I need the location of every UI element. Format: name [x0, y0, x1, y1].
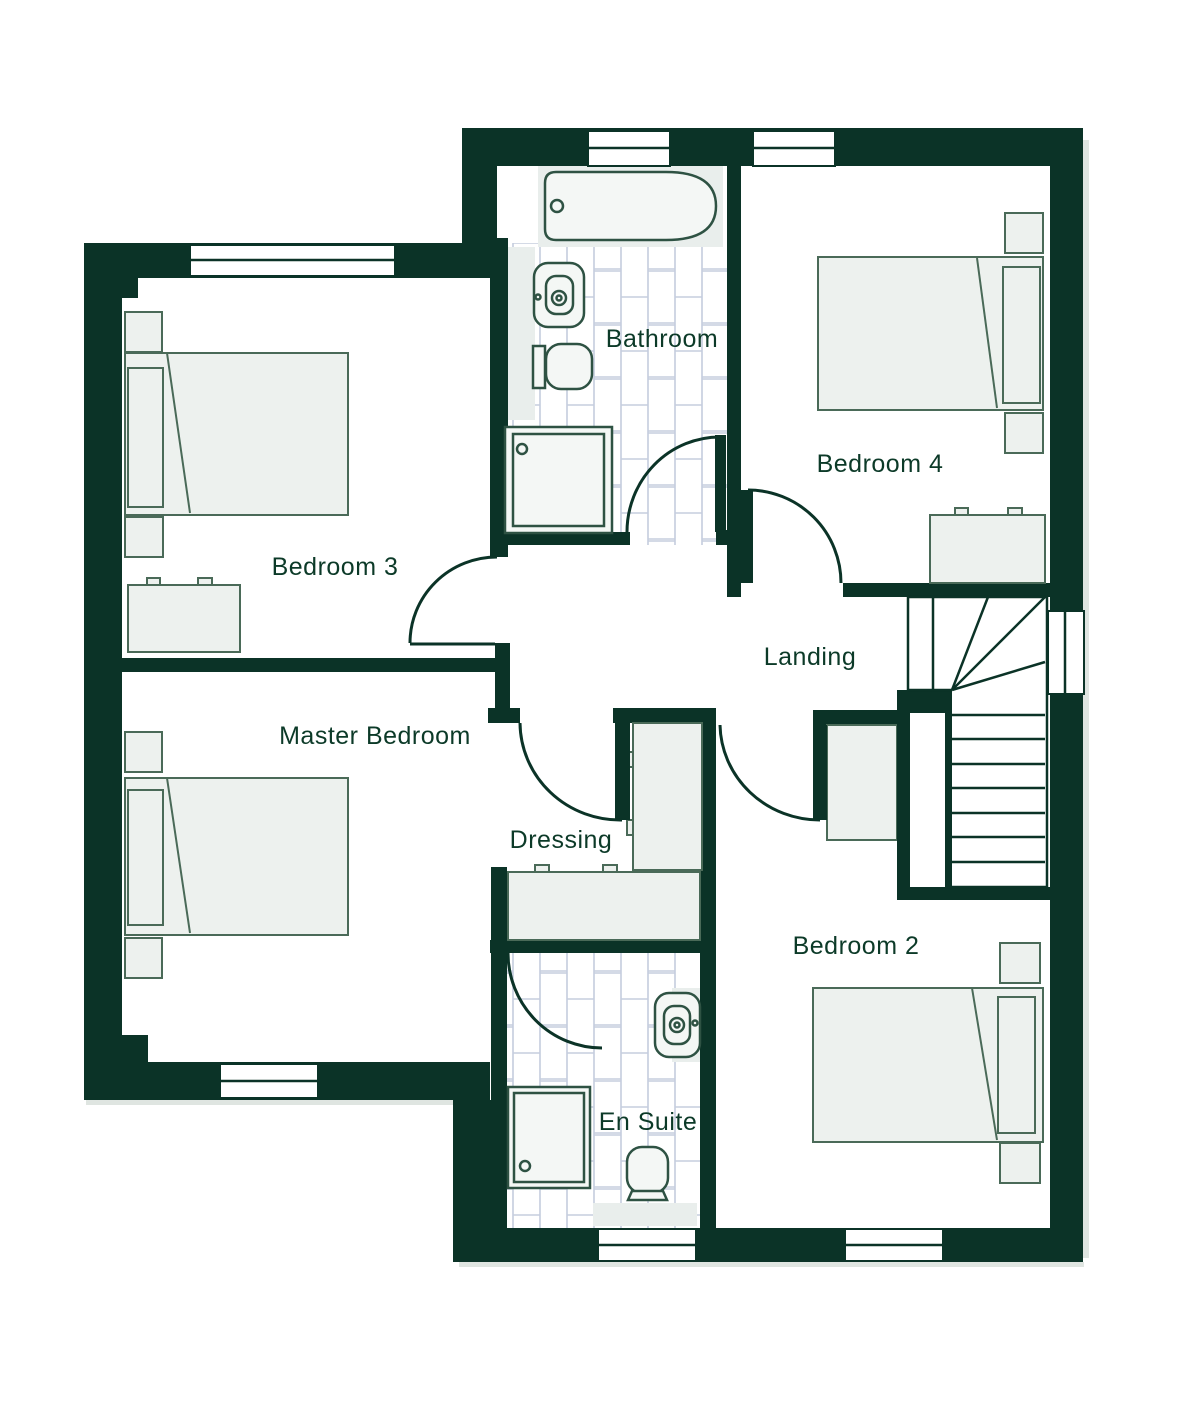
bedside-table	[125, 517, 163, 557]
dresser	[930, 508, 1045, 583]
bedside-table	[125, 938, 162, 978]
floor-plan-canvas: Bathroom Bedroom 4 Bedroom 3 Landing Mas…	[0, 0, 1192, 1418]
bedside-table	[125, 312, 162, 352]
room-label-bathroom: Bathroom	[606, 325, 718, 353]
room-label-master-bedroom: Master Bedroom	[279, 722, 471, 750]
ensuite-shelf	[593, 1203, 697, 1226]
window	[845, 1229, 943, 1261]
room-label-landing: Landing	[764, 643, 856, 671]
double-bed	[125, 353, 348, 515]
window	[753, 131, 835, 166]
bedside-table	[1000, 943, 1040, 983]
wardrobe	[508, 865, 700, 940]
dresser	[128, 578, 240, 652]
room-label-bedroom4: Bedroom 4	[817, 450, 944, 478]
window	[598, 1229, 696, 1261]
bedside-table	[1005, 413, 1043, 453]
window	[220, 1064, 318, 1098]
bedside-table	[1000, 1143, 1040, 1183]
window	[1048, 611, 1084, 694]
double-bed	[813, 988, 1043, 1142]
double-bed	[125, 778, 348, 935]
toilet-symbol	[627, 1147, 668, 1200]
bathtub-symbol	[545, 172, 716, 240]
window	[588, 131, 670, 166]
double-bed	[818, 257, 1043, 410]
washbasin-symbol	[655, 993, 700, 1057]
bedside-table	[125, 732, 162, 772]
wardrobe	[821, 725, 897, 840]
toilet-symbol	[533, 344, 592, 389]
bedside-table	[1005, 213, 1043, 253]
bathroom-vanity-strip	[507, 247, 535, 420]
floor-plan-page: Bathroom Bedroom 4 Bedroom 3 Landing Mas…	[0, 0, 1192, 1418]
room-label-ensuite: En Suite	[599, 1108, 698, 1136]
shower-tray-symbol	[505, 427, 612, 533]
window	[190, 245, 395, 276]
washbasin-symbol	[534, 263, 584, 327]
wardrobe	[627, 723, 702, 870]
staircase	[897, 597, 1047, 900]
room-label-bedroom3: Bedroom 3	[272, 553, 399, 581]
room-label-dressing: Dressing	[510, 826, 613, 854]
room-label-bedroom2: Bedroom 2	[793, 932, 920, 960]
shower-tray-symbol	[508, 1087, 590, 1188]
